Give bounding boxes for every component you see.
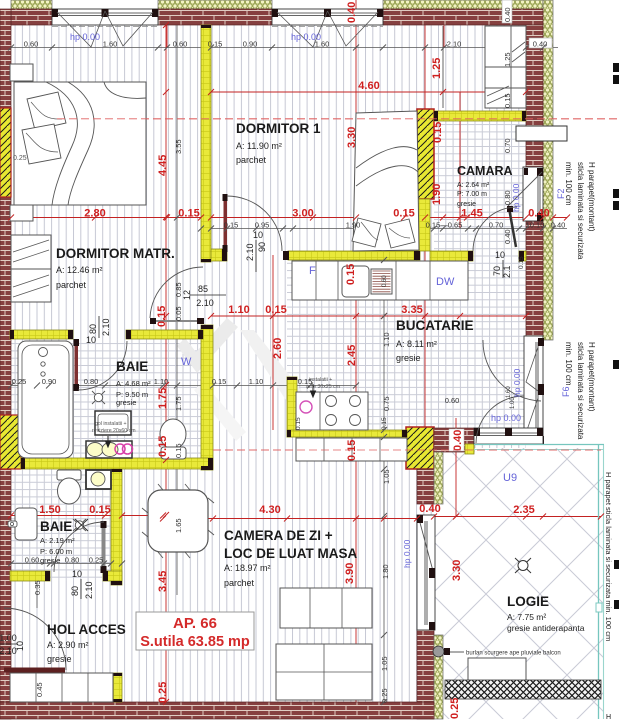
svg-text:A: 7.75 m²: A: 7.75 m² [507,612,546,622]
svg-text:DORMITOR 1: DORMITOR 1 [236,121,321,136]
svg-text:H parapet(montant): H parapet(montant) [587,162,596,232]
svg-text:0.25: 0.25 [89,556,104,565]
svg-text:0.90: 0.90 [42,377,57,386]
svg-text:parchet: parchet [236,155,267,165]
svg-text:4.45: 4.45 [157,155,169,176]
svg-text:4.60: 4.60 [358,80,379,92]
svg-text:F: F [309,265,316,277]
svg-text:3.90: 3.90 [344,563,356,584]
svg-text:A: 18.97 m²: A: 18.97 m² [224,563,271,573]
svg-text:hp 0.00: hp 0.00 [291,32,321,42]
svg-text:H parapet sticla laminata si s: H parapet sticla laminata si securizata … [604,472,613,641]
svg-text:0.25: 0.25 [449,698,461,719]
svg-text:burlan scurgere ape pluviale b: burlan scurgere ape pluviale balcon [466,651,561,657]
svg-text:min. 100 cm: min. 100 cm [564,342,573,386]
svg-text:0.70: 0.70 [503,138,512,153]
svg-text:12: 12 [182,290,192,300]
svg-text:BUCATARIE: BUCATARIE [396,318,474,333]
svg-text:70: 70 [492,266,502,276]
svg-text:hp 0.00: hp 0.00 [511,183,521,212]
svg-text:1.00: 1.00 [510,397,516,409]
svg-text:W: W [181,356,192,368]
svg-text:0.15: 0.15 [157,436,169,457]
svg-text:4.30: 4.30 [259,504,280,516]
svg-text:0.25: 0.25 [157,682,169,703]
svg-text:0.15: 0.15 [518,256,525,269]
svg-text:A: 2.90 m²: A: 2.90 m² [47,640,89,650]
svg-text:BAIE: BAIE [40,519,72,534]
svg-text:hp 0.00: hp 0.00 [512,368,522,397]
svg-text:90: 90 [257,242,267,252]
svg-text:sticla laminata si securizata: sticla laminata si securizata [576,342,585,440]
svg-text:1.90: 1.90 [431,184,443,205]
svg-text:3.55: 3.55 [174,139,183,154]
svg-text:0.15: 0.15 [503,93,512,108]
svg-text:0.15: 0.15 [381,417,388,430]
svg-text:0.70: 0.70 [489,221,504,230]
svg-text:2.10: 2.10 [447,40,462,49]
svg-text:0.15: 0.15 [178,208,199,220]
svg-text:0.15: 0.15 [345,264,357,285]
svg-text:2.1: 2.1 [502,265,512,278]
svg-text:80: 80 [88,324,98,334]
svg-text:parchet: parchet [56,280,87,290]
svg-text:0.25: 0.25 [12,377,27,386]
svg-text:LOC DE LUAT MASA: LOC DE LUAT MASA [224,546,357,561]
svg-text:BAIE: BAIE [116,359,148,374]
svg-text:reviziere 20x60 cm: reviziere 20x60 cm [92,428,136,434]
svg-text:0.40: 0.40 [503,7,512,22]
svg-text:hp 0.00: hp 0.00 [491,413,521,423]
svg-text:parchet: parchet [224,578,255,588]
svg-text:10.10: 10.10 [526,221,545,230]
svg-text:1.90: 1.90 [346,221,361,230]
svg-text:0.90: 0.90 [243,40,258,49]
svg-text:gresie: gresie [47,654,72,664]
svg-text:10: 10 [253,230,263,240]
svg-text:10: 10 [72,569,82,579]
svg-text:instalatii +: instalatii + [309,377,332,383]
svg-text:A: 4.68 m²: A: 4.68 m² [116,379,151,388]
svg-text:0.60: 0.60 [25,556,40,565]
svg-text:1.25: 1.25 [503,52,512,67]
svg-text:A: 11.90 m²: A: 11.90 m² [236,141,282,151]
svg-text:1.60: 1.60 [103,40,118,49]
svg-text:A: 2.19 m²: A: 2.19 m² [40,536,75,545]
svg-text:3.30: 3.30 [346,127,358,148]
svg-text:0.35: 0.35 [33,580,42,595]
svg-text:0.40: 0.40 [528,208,549,220]
svg-text:A: 12.46 m²: A: 12.46 m² [56,265,103,275]
svg-text:2.60: 2.60 [272,338,284,359]
svg-text:85: 85 [198,284,208,294]
svg-text:2.35: 2.35 [513,504,534,516]
svg-text:1.75: 1.75 [174,396,183,411]
svg-text:3.35: 3.35 [401,304,422,316]
svg-text:gresie: gresie [116,398,136,407]
svg-text:A: 8.11 m²: A: 8.11 m² [396,339,437,349]
svg-text:0.40: 0.40 [452,430,464,451]
svg-text:0.60: 0.60 [24,40,39,49]
svg-text:1.05: 1.05 [382,469,391,484]
svg-text:2.45: 2.45 [346,345,358,366]
svg-text:0.60: 0.60 [445,396,460,405]
svg-text:0.25: 0.25 [13,155,27,162]
svg-text:P: 7.00 m: P: 7.00 m [457,191,487,198]
svg-text:0.60: 0.60 [173,40,188,49]
svg-text:1.10: 1.10 [249,377,264,386]
svg-text:0.15: 0.15 [432,122,444,143]
svg-text:A: 2.64 m²: A: 2.64 m² [457,182,490,189]
svg-text:min. 100 cm: min. 100 cm [564,162,573,206]
svg-text:1.75: 1.75 [157,388,169,409]
svg-text:DW: DW [436,276,455,288]
svg-text:1.10: 1.10 [382,332,391,347]
svg-text:0.75: 0.75 [382,396,391,411]
svg-text:1.65: 1.65 [174,518,183,533]
svg-text:1.50: 1.50 [39,504,60,516]
svg-text:DORMITOR MATR.: DORMITOR MATR. [56,246,175,261]
svg-text:2.10: 2.10 [84,581,94,599]
svg-text:3.45: 3.45 [157,571,169,592]
svg-text:0.15: 0.15 [224,221,239,230]
svg-text:0.40: 0.40 [503,229,512,244]
svg-text:sticla laminata si securizata: sticla laminata si securizata [576,162,585,260]
svg-text:LOGIE: LOGIE [507,594,549,609]
svg-text:0.15: 0.15 [265,304,286,316]
svg-text:S.utila 63.85 mp: S.utila 63.85 mp [140,634,250,650]
svg-text:gol instalatii +: gol instalatii + [95,421,127,427]
svg-text:0.15: 0.15 [295,417,302,430]
svg-text:CAMERA DE ZI +: CAMERA DE ZI + [224,528,333,543]
svg-text:hp 0.00: hp 0.00 [70,32,100,42]
svg-text:gresie antiderapanta: gresie antiderapanta [507,623,585,633]
svg-text:0.15: 0.15 [174,443,183,458]
svg-text:HOL ACCES: HOL ACCES [47,622,126,637]
svg-text:H parapet(montant): H parapet(montant) [587,342,596,412]
svg-text:3.30: 3.30 [451,560,463,581]
svg-text:AP. 66: AP. 66 [173,615,217,632]
svg-text:10: 10 [15,641,25,651]
svg-text:80: 80 [70,586,80,596]
svg-text:0.05: 0.05 [174,306,183,321]
svg-text:3.00: 3.00 [292,208,313,220]
svg-text:2.10: 2.10 [196,298,214,308]
svg-text:CAMARA: CAMARA [457,164,513,178]
svg-text:1.80: 1.80 [381,564,390,579]
svg-text:0.40: 0.40 [419,503,440,515]
svg-text:0.40: 0.40 [346,2,358,23]
svg-text:0.15: 0.15 [208,40,223,49]
svg-text:0.80: 0.80 [65,556,80,565]
svg-text:10: 10 [86,335,96,345]
svg-text:0.15: 0.15 [89,504,110,516]
svg-text:1.45: 1.45 [461,208,482,220]
svg-text:1.10: 1.10 [228,304,249,316]
svg-text:0.60: 0.60 [382,275,388,287]
svg-text:1.25: 1.25 [431,58,443,79]
svg-text:hp 0.00: hp 0.00 [402,539,412,568]
svg-text:H: H [606,714,611,720]
svg-text:F6: F6 [561,386,571,397]
svg-text:2.10: 2.10 [101,318,111,336]
svg-text:U9: U9 [503,472,517,484]
svg-text:0.15: 0.15 [298,377,313,386]
svg-text:0.45: 0.45 [35,682,44,697]
svg-text:gresie: gresie [396,353,421,363]
svg-text:1.05: 1.05 [380,656,389,671]
svg-text:2.10: 2.10 [245,243,255,261]
svg-text:10: 10 [495,250,505,260]
svg-text:0.40: 0.40 [533,40,548,49]
svg-text:0.80: 0.80 [84,377,99,386]
